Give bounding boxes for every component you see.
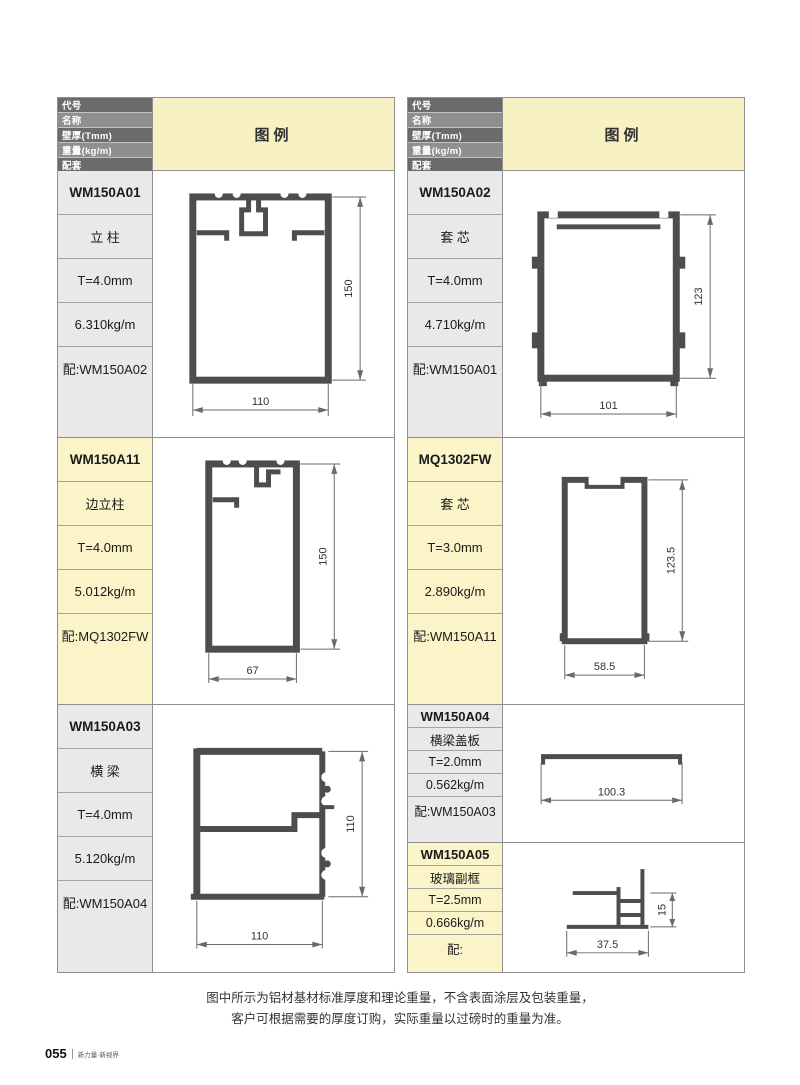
legend-header: 图例 (153, 98, 394, 170)
profile-block-mq1302fw: MQ1302FW 套 芯 T=3.0mm 2.890kg/m 配:WM150A1… (408, 438, 744, 705)
profile-name: 玻璃副框 (408, 866, 502, 889)
dim-height-label: 150 (343, 279, 355, 297)
footer-brand-slogan: 新力量·新视界 (78, 1049, 119, 1059)
profile-block-wm150a04: WM150A04 横梁盖板 T=2.0mm 0.562kg/m 配:WM150A… (408, 705, 744, 843)
profile-drawing-area: 100.3 (503, 705, 744, 842)
profile-drawing-wm150a02: 123 101 (503, 171, 744, 437)
dim-width-label: 37.5 (597, 939, 618, 951)
profile-table-left: 代号 名称 壁厚(Tmm) 重量(kg/m) 配套 图例 WM150A01 立 … (57, 97, 395, 973)
profile-thickness: T=4.0mm (58, 793, 152, 837)
profile-name: 套 芯 (408, 215, 502, 259)
header-row-weight: 重量(kg/m) (408, 143, 502, 158)
header-row-code: 代号 (58, 98, 152, 113)
page-footer: 055 新力量·新视界 (45, 1046, 119, 1061)
profile-info: WM150A03 横 梁 T=4.0mm 5.120kg/m 配:WM150A0… (58, 705, 153, 972)
profile-drawing-area: 123.5 58.5 (503, 438, 744, 704)
profile-drawing-wm150a04: 100.3 (503, 705, 744, 842)
profile-thickness: T=3.0mm (408, 526, 502, 570)
profile-info: WM150A11 边立柱 T=4.0mm 5.012kg/m 配:MQ1302F… (58, 438, 153, 704)
dim-width-label: 58.5 (594, 661, 615, 673)
profile-block-wm150a11: WM150A11 边立柱 T=4.0mm 5.012kg/m 配:MQ1302F… (58, 438, 394, 705)
dim-width-label: 67 (247, 665, 259, 677)
profile-drawing-area: 15 37.5 (503, 843, 744, 972)
header-row-name: 名称 (58, 113, 152, 128)
profile-code: WM150A05 (408, 843, 502, 866)
dim-width-label: 110 (252, 396, 269, 408)
dim-height-label: 110 (345, 815, 357, 832)
profile-name: 套 芯 (408, 482, 502, 526)
profile-match: 配:WM150A03 (408, 797, 502, 842)
profile-shape (541, 215, 676, 378)
profile-thickness: T=4.0mm (408, 259, 502, 303)
dim-width-label: 110 (251, 931, 268, 943)
profile-drawing-area: 110 110 (153, 705, 394, 972)
profile-drawing-wm150a05: 15 37.5 (503, 843, 744, 972)
dim-height-label: 123.5 (665, 547, 677, 574)
profile-code: WM150A04 (408, 705, 502, 728)
profile-name: 横 梁 (58, 749, 152, 793)
profile-drawing-mq1302fw: 123.5 58.5 (503, 438, 744, 704)
profile-drawing-wm150a03: 110 110 (153, 705, 394, 972)
profile-table-right: 代号 名称 壁厚(Tmm) 重量(kg/m) 配套 图例 WM150A02 套 … (407, 97, 745, 973)
profile-shape (209, 464, 297, 649)
profile-name: 边立柱 (58, 482, 152, 526)
dim-height-label: 123 (693, 287, 705, 305)
dim-height-label: 15 (656, 904, 668, 916)
profile-match: 配:WM150A02 (58, 347, 152, 437)
profile-shape (193, 197, 328, 380)
profile-thickness: T=4.0mm (58, 259, 152, 303)
header-label-column: 代号 名称 壁厚(Tmm) 重量(kg/m) 配套 (58, 98, 153, 170)
profile-thickness: T=2.0mm (408, 751, 502, 774)
profile-name: 立 柱 (58, 215, 152, 259)
header-row-name: 名称 (408, 113, 502, 128)
header-row-match: 配套 (58, 158, 152, 172)
page-number: 055 (45, 1046, 67, 1061)
profile-weight: 5.120kg/m (58, 837, 152, 881)
profile-weight: 0.562kg/m (408, 774, 502, 797)
profile-info: WM150A02 套 芯 T=4.0mm 4.710kg/m 配:WM150A0… (408, 171, 503, 437)
footer-divider (72, 1049, 73, 1059)
profile-code: WM150A03 (58, 705, 152, 749)
profile-match: 配: (408, 935, 502, 972)
profile-info: WM150A05 玻璃副框 T=2.5mm 0.666kg/m 配: (408, 843, 503, 972)
profile-info: WM150A04 横梁盖板 T=2.0mm 0.562kg/m 配:WM150A… (408, 705, 503, 842)
profile-match: 配:WM150A11 (408, 614, 502, 704)
profile-drawing-wm150a11: 150 67 (153, 438, 394, 704)
footnote-line-2: 客户可根据需要的厚度订购，实际重量以过磅时的重量为准。 (0, 1009, 800, 1030)
footnote-line-1: 图中所示为铝材基材标准厚度和理论重量，不含表面涂层及包装重量， (0, 988, 800, 1009)
profile-drawing-area: 150 110 (153, 171, 394, 437)
profile-info: WM150A01 立 柱 T=4.0mm 6.310kg/m 配:WM150A0… (58, 171, 153, 437)
profile-code: WM150A02 (408, 171, 502, 215)
profile-info: MQ1302FW 套 芯 T=3.0mm 2.890kg/m 配:WM150A1… (408, 438, 503, 704)
table-header-right: 代号 名称 壁厚(Tmm) 重量(kg/m) 配套 图例 (408, 98, 744, 171)
profile-block-wm150a03: WM150A03 横 梁 T=4.0mm 5.120kg/m 配:WM150A0… (58, 705, 394, 972)
catalog-page: 代号 名称 壁厚(Tmm) 重量(kg/m) 配套 图例 WM150A01 立 … (0, 0, 800, 1085)
profile-weight: 6.310kg/m (58, 303, 152, 347)
dim-height-label: 150 (317, 547, 329, 565)
profile-weight: 2.890kg/m (408, 570, 502, 614)
profile-name: 横梁盖板 (408, 728, 502, 751)
profile-thickness: T=4.0mm (58, 526, 152, 570)
profile-code: MQ1302FW (408, 438, 502, 482)
profile-weight: 4.710kg/m (408, 303, 502, 347)
profile-shape (565, 480, 645, 641)
profile-code: WM150A01 (58, 171, 152, 215)
dim-width-label: 101 (599, 400, 617, 412)
header-row-match: 配套 (408, 158, 502, 172)
legend-header: 图例 (503, 98, 744, 170)
footnote: 图中所示为铝材基材标准厚度和理论重量，不含表面涂层及包装重量， 客户可根据需要的… (0, 988, 800, 1030)
dim-width-label: 100.3 (598, 786, 625, 798)
profile-drawing-area: 123 101 (503, 171, 744, 437)
profile-match: 配:MQ1302FW (58, 614, 152, 704)
profile-thickness: T=2.5mm (408, 889, 502, 912)
profile-drawing-wm150a01: 150 110 (153, 171, 394, 437)
profile-weight: 0.666kg/m (408, 912, 502, 935)
profile-block-wm150a02: WM150A02 套 芯 T=4.0mm 4.710kg/m 配:WM150A0… (408, 171, 744, 438)
profile-match: 配:WM150A01 (408, 347, 502, 437)
profile-block-wm150a01: WM150A01 立 柱 T=4.0mm 6.310kg/m 配:WM150A0… (58, 171, 394, 438)
table-header-left: 代号 名称 壁厚(Tmm) 重量(kg/m) 配套 图例 (58, 98, 394, 171)
profile-code: WM150A11 (58, 438, 152, 482)
header-row-weight: 重量(kg/m) (58, 143, 152, 158)
header-label-column: 代号 名称 壁厚(Tmm) 重量(kg/m) 配套 (408, 98, 503, 170)
profile-weight: 5.012kg/m (58, 570, 152, 614)
header-row-thickness: 壁厚(Tmm) (408, 128, 502, 143)
header-row-code: 代号 (408, 98, 502, 113)
profile-match: 配:WM150A04 (58, 881, 152, 972)
header-row-thickness: 壁厚(Tmm) (58, 128, 152, 143)
profile-block-wm150a05: WM150A05 玻璃副框 T=2.5mm 0.666kg/m 配: 15 (408, 843, 744, 972)
profile-drawing-area: 150 67 (153, 438, 394, 704)
